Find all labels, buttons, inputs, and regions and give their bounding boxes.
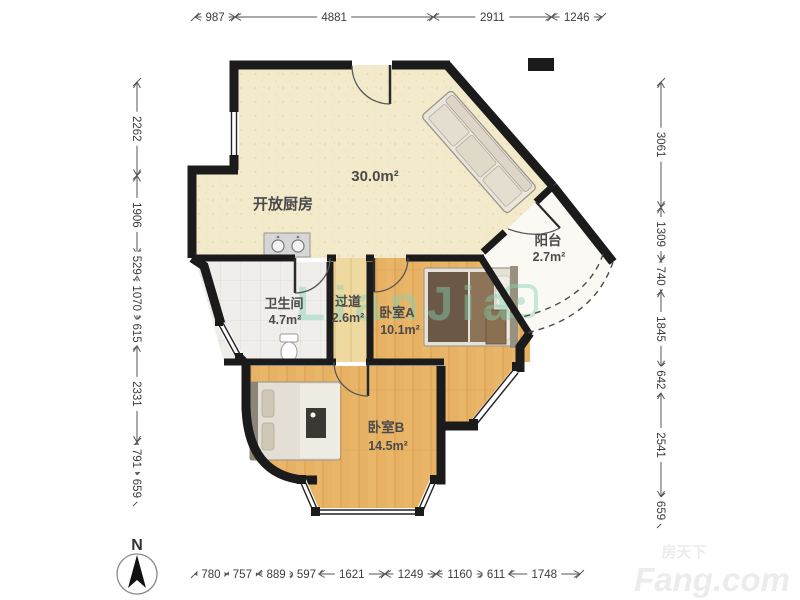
dimension-label: 611: [487, 569, 505, 581]
dimension-label: 791: [130, 449, 142, 468]
room-area-bedroomA: 10.1m²: [380, 323, 420, 337]
dimension-label: 1906: [130, 202, 142, 228]
tv-unit: [306, 408, 326, 438]
room-label-bedroomB: 卧室B: [368, 419, 405, 435]
room-area-hallway: 2.6m²: [332, 311, 365, 325]
bed-bedroomB: [250, 382, 340, 460]
dimension-label: 1070: [130, 285, 142, 311]
watermark-fang: 房天下 Fang.com: [634, 543, 790, 598]
room-label-kitchen: 开放厨房: [253, 195, 313, 213]
dimension-label: 1748: [531, 569, 557, 581]
room-label-hallway: 过道: [335, 294, 361, 309]
room-label-bedroomA: 卧室A: [379, 305, 415, 320]
dimensions-right: 3061130974018456422541659: [654, 78, 668, 528]
dimension-label: 889: [266, 569, 285, 581]
dimension-label: 987: [205, 12, 224, 24]
dimension-label: 757: [233, 569, 252, 581]
dimensions-left: 2262190652910706152331791659: [130, 78, 144, 506]
window-kitchen: [229, 112, 239, 155]
toilet: [280, 334, 298, 362]
dimension-label: 3061: [654, 132, 666, 158]
compass-needle-icon: [128, 555, 146, 588]
dimension-label: 615: [130, 323, 142, 342]
compass: N: [117, 537, 157, 594]
stove: [264, 233, 310, 257]
dimension-label: 1249: [398, 569, 424, 581]
dimension-label: 642: [654, 370, 666, 389]
room-area-bathroom: 4.7m²: [269, 313, 302, 327]
room-area-balcony: 2.7m²: [533, 250, 566, 264]
dimension-label: 597: [297, 569, 316, 581]
wall-stub: [528, 58, 554, 71]
room-area-kitchen: 30.0m²: [351, 168, 399, 185]
room-area-bedroomB: 14.5m²: [368, 439, 408, 453]
dimension-label: 1621: [339, 569, 365, 581]
dimensions-top: 987488129111246: [191, 10, 606, 24]
dimension-label: 2331: [130, 381, 142, 407]
room-label-balcony: 阳台: [535, 232, 562, 248]
compass-north-label: N: [131, 537, 143, 554]
dimension-label: 780: [201, 569, 220, 581]
floorplan-image: LianJia: [0, 0, 800, 600]
dimension-label: 2911: [480, 12, 505, 24]
floorplan-page: LianJia: [0, 0, 800, 600]
dimension-label: 1160: [447, 569, 472, 581]
dimension-label: 1845: [654, 316, 666, 342]
dimension-label: 659: [654, 501, 666, 520]
dimension-label: 2262: [130, 116, 142, 142]
dimension-label: 529: [130, 256, 142, 275]
watermark-fang-cn: 房天下: [661, 543, 706, 561]
room-label-bathroom: 卫生间: [264, 296, 303, 311]
dimension-label: 2541: [654, 432, 666, 458]
dimension-label: 740: [654, 266, 666, 285]
dimensions-bottom: 7807578895971621124911606111748: [191, 567, 584, 581]
dimension-label: 4881: [321, 12, 347, 24]
watermark-fang-en: Fang.com: [634, 561, 790, 598]
dimension-label: 659: [130, 479, 142, 498]
dimension-label: 1246: [564, 12, 590, 24]
dimension-label: 1309: [654, 221, 666, 247]
